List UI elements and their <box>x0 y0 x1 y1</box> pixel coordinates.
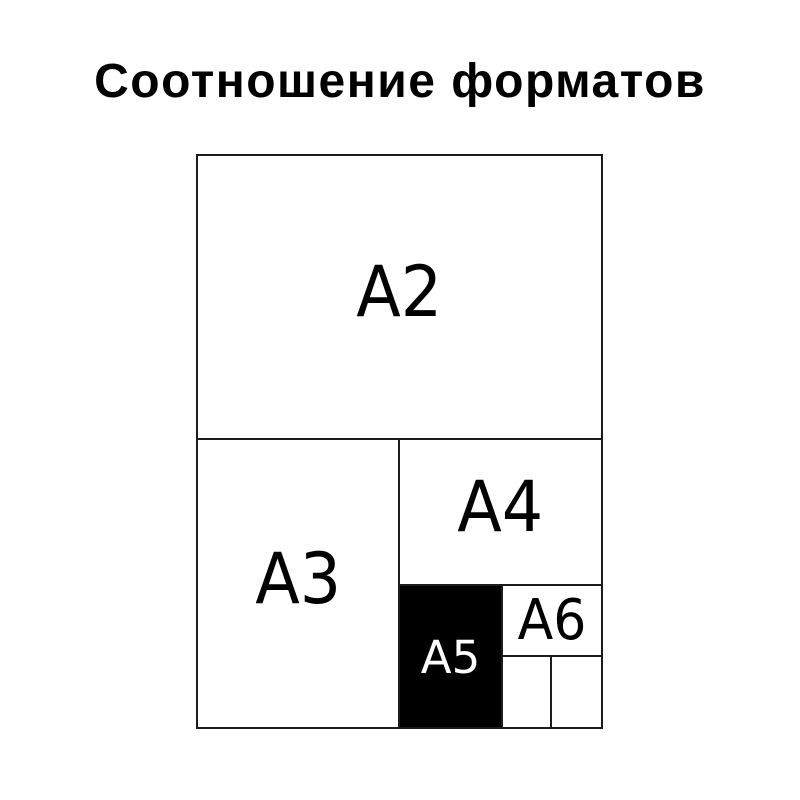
format-box-a5: A5 <box>398 584 503 727</box>
format-label-a6: A6 <box>518 593 587 649</box>
format-label-a5: A5 <box>421 635 480 680</box>
page: Соотношение форматов A2 A3 A4 A5 A6 <box>0 0 800 800</box>
format-box-a6: A6 <box>503 586 601 655</box>
page-title: Соотношение форматов <box>0 54 800 110</box>
paper-format-diagram: A2 A3 A4 A5 A6 <box>196 154 603 729</box>
format-box-a2: A2 <box>198 156 601 438</box>
format-box-a3: A3 <box>198 440 398 727</box>
format-box-a7-left <box>503 657 552 727</box>
divider-a3-a4 <box>398 438 400 727</box>
format-box-a4: A4 <box>400 440 601 584</box>
format-label-a2: A2 <box>357 257 443 327</box>
format-box-a7-right <box>554 657 601 727</box>
format-label-a3: A3 <box>255 544 341 614</box>
divider-a4-bottom <box>398 584 601 586</box>
divider-a7-split <box>550 655 552 727</box>
format-label-a4: A4 <box>458 472 544 542</box>
